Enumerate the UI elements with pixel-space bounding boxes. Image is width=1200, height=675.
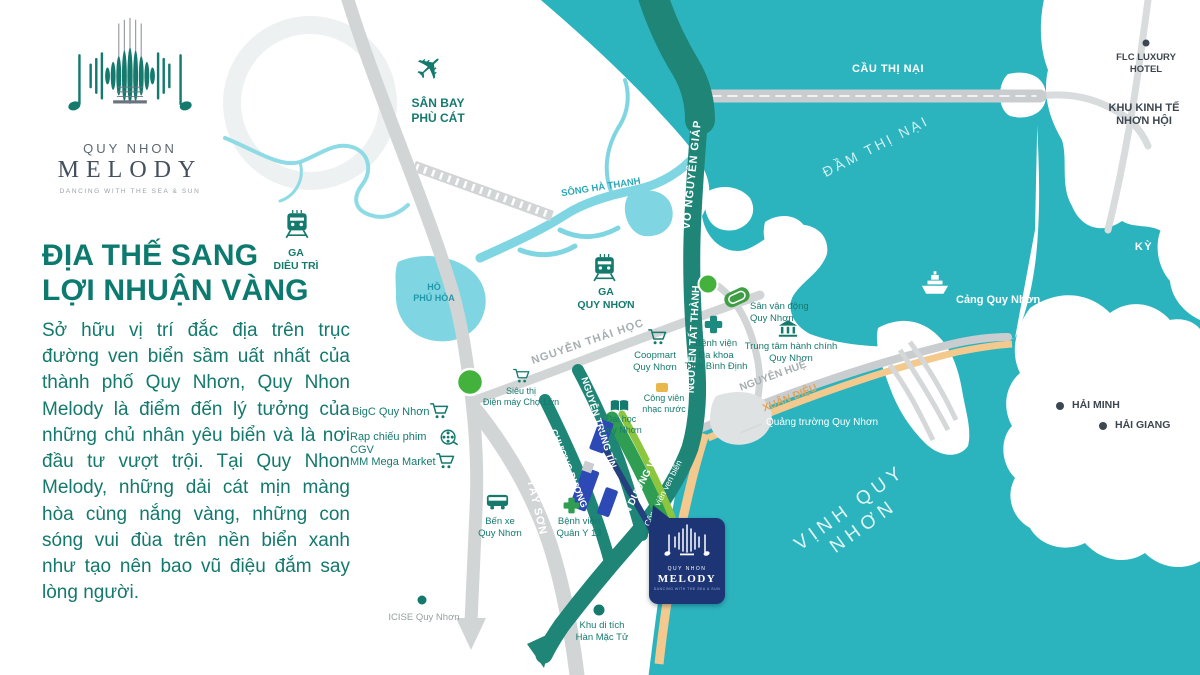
label-bigc: BigC Quy Nhơn: [352, 406, 430, 419]
label-san-bay-phu-cat: SÂN BAY PHÙ CÁT: [386, 96, 490, 125]
brand-logo: QUY NHON MELODY DANCING WITH THE SEA & S…: [35, 16, 225, 195]
cart-icon-bigc: [430, 402, 450, 419]
cart-icon-mm-mega: [436, 452, 456, 469]
label-cong-vien-nhac-nuoc: Công viên nhạc nước: [632, 393, 696, 415]
marker-pointer: [651, 505, 675, 523]
hospital-cross-icon-da-khoa: [703, 314, 724, 335]
railway: [414, 166, 552, 216]
quy-nhon-melody-location-map: QUY NHON MELODY DANCING WITH THE SEA & S…: [0, 0, 1200, 675]
label-dien-may-cho-lon: Siêu thị Điện máy Chợ Lớn: [482, 386, 560, 408]
brand-tagline: DANCING WITH THE SEA & SUN: [35, 188, 225, 195]
label-khu-kinh-te-nhon-hoi: KHU KINH TẾ NHƠN HỘI: [1088, 102, 1200, 129]
brand-logo-icon: [55, 16, 205, 134]
label-dai-hoc-quy-nhon: Đại học Quy Nhơn: [590, 414, 652, 436]
label-mm-mega-market: MM Mega Market: [350, 456, 438, 469]
label-icise: ICISE Quy Nhơn: [380, 612, 468, 624]
label-cang-quy-nhon: Cảng Quy Nhơn: [956, 294, 1048, 307]
label-ga-dieu-tri: GA DIÊU TRÌ: [258, 247, 334, 273]
label-han-mac-tu: Khu di tích Hàn Mặc Tử: [562, 620, 642, 643]
train-station-icon-quy-nhon: [592, 254, 617, 283]
label-benh-vien-quan-y: Bệnh viện Quân Y 13: [545, 516, 613, 539]
label-hai-minh: HẢI MINH: [1072, 399, 1134, 412]
marker-brand-top: QUY NHON: [649, 566, 725, 572]
port-ship-icon: [920, 270, 950, 295]
label-quang-truong: Quảng trường Quy Nhơn: [766, 417, 896, 429]
melody-project-marker: QUY NHON MELODY DANCING WITH THE SEA & S…: [649, 518, 725, 604]
label-ky-co: KỲ CO: [1126, 241, 1186, 254]
label-flc-luxury-hotel: FLC LUXURY HOTEL: [1100, 52, 1192, 75]
label-trung-tam-hanh-chinh: Trung tâm hành chính Quy Nhơn: [736, 341, 846, 364]
marker-logo-icon: [662, 522, 712, 560]
label-cau-thi-nai: CẦU THỊ NẠI: [840, 63, 936, 76]
music-fountain-icon: [656, 383, 668, 392]
label-ga-quy-nhon: GA QUY NHƠN: [568, 286, 644, 312]
label-cgv: Rạp chiếu phim CGV: [350, 431, 438, 458]
cart-icon-coopmart: [648, 328, 668, 345]
marker-tagline: DANCING WITH THE SEA & SUN: [649, 587, 725, 591]
marker-brand-name: MELODY: [649, 573, 725, 585]
label-ho-phu-hoa: HỒ PHÚ HÒA: [402, 282, 466, 304]
brand-name-label: MELODY: [35, 157, 225, 184]
label-ben-xe: Bến xe Quy Nhơn: [468, 516, 532, 539]
brand-top-label: QUY NHON: [35, 141, 225, 156]
label-san-van-dong: Sân vận động Quy Nhơn: [750, 301, 834, 324]
label-hai-giang: HẢI GIANG: [1115, 419, 1187, 432]
university-book-icon: [610, 399, 629, 413]
intro-paragraph: Sở hữu vị trí đắc địa trên trục đường ve…: [42, 318, 350, 606]
cinema-icon-cgv: [440, 429, 458, 447]
bus-station-icon: [486, 494, 509, 510]
train-station-icon-dieu-tri: [284, 210, 310, 240]
